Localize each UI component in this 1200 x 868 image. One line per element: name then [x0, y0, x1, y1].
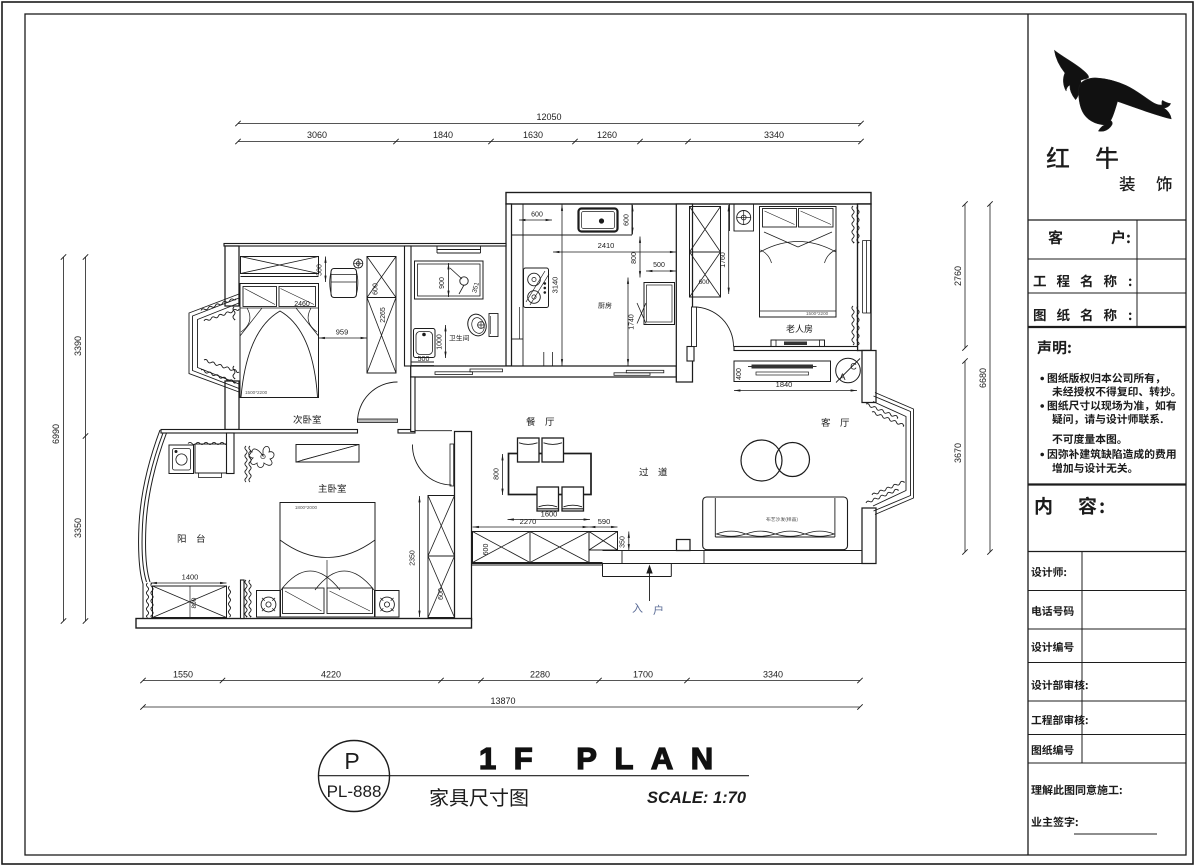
svg-text:3390: 3390 — [73, 336, 83, 356]
svg-text:590: 590 — [598, 517, 611, 526]
svg-text:1600: 1600 — [541, 510, 558, 519]
svg-text:1800*2000: 1800*2000 — [295, 505, 318, 510]
svg-text:500: 500 — [653, 262, 665, 269]
svg-text:500: 500 — [418, 356, 430, 363]
svg-text:500: 500 — [317, 264, 324, 276]
svg-text:800: 800 — [494, 468, 501, 480]
svg-text:1550: 1550 — [173, 670, 193, 680]
svg-text:800: 800 — [631, 252, 638, 264]
svg-text:PL-888: PL-888 — [327, 782, 382, 801]
svg-text:2460: 2460 — [294, 301, 310, 308]
svg-text:SCALE: 1:70: SCALE: 1:70 — [647, 789, 747, 807]
svg-text:3340: 3340 — [764, 130, 784, 140]
svg-text:350: 350 — [620, 536, 627, 548]
svg-text:1F PLAN: 1F PLAN — [479, 741, 731, 776]
svg-text:13870: 13870 — [490, 696, 515, 706]
svg-text:1000: 1000 — [437, 334, 444, 350]
svg-text:959: 959 — [336, 328, 349, 337]
svg-text:600: 600 — [531, 212, 543, 219]
svg-text:3340: 3340 — [763, 670, 783, 680]
svg-text:3350: 3350 — [73, 518, 83, 538]
svg-text:600: 600 — [624, 214, 631, 226]
svg-text:3140: 3140 — [551, 277, 560, 294]
svg-text:900: 900 — [439, 277, 446, 289]
svg-text:1630: 1630 — [523, 130, 543, 140]
svg-text:3670: 3670 — [953, 443, 963, 463]
svg-text:A: A — [839, 372, 845, 382]
svg-text:600: 600 — [483, 544, 490, 556]
svg-text:1840: 1840 — [776, 380, 793, 389]
svg-text:2760: 2760 — [953, 266, 963, 286]
svg-text:4220: 4220 — [321, 670, 341, 680]
svg-text:3060: 3060 — [307, 130, 327, 140]
svg-text:2265: 2265 — [380, 307, 387, 323]
svg-text:2280: 2280 — [530, 670, 550, 680]
svg-text:600: 600 — [699, 279, 710, 286]
svg-text:600: 600 — [438, 588, 445, 600]
svg-text:1740: 1740 — [629, 314, 636, 330]
svg-text:1840: 1840 — [433, 130, 453, 140]
svg-text:1700: 1700 — [633, 670, 653, 680]
svg-text:2410: 2410 — [598, 241, 615, 250]
svg-text:2350: 2350 — [410, 550, 417, 566]
svg-text:6990: 6990 — [51, 424, 61, 444]
svg-text:1760: 1760 — [720, 252, 727, 268]
svg-text:600: 600 — [373, 283, 380, 295]
svg-text:2270: 2270 — [520, 517, 537, 526]
svg-text:800: 800 — [191, 597, 198, 608]
svg-text:P: P — [344, 748, 359, 774]
svg-text:1500*2200: 1500*2200 — [245, 390, 268, 395]
svg-text:1400: 1400 — [182, 573, 199, 582]
svg-text:1260: 1260 — [597, 130, 617, 140]
svg-text:6680: 6680 — [978, 368, 988, 388]
svg-text:1500*2200: 1500*2200 — [806, 311, 829, 316]
svg-text:C: C — [850, 362, 857, 372]
svg-text:400: 400 — [736, 368, 743, 380]
svg-text:12050: 12050 — [536, 112, 561, 122]
